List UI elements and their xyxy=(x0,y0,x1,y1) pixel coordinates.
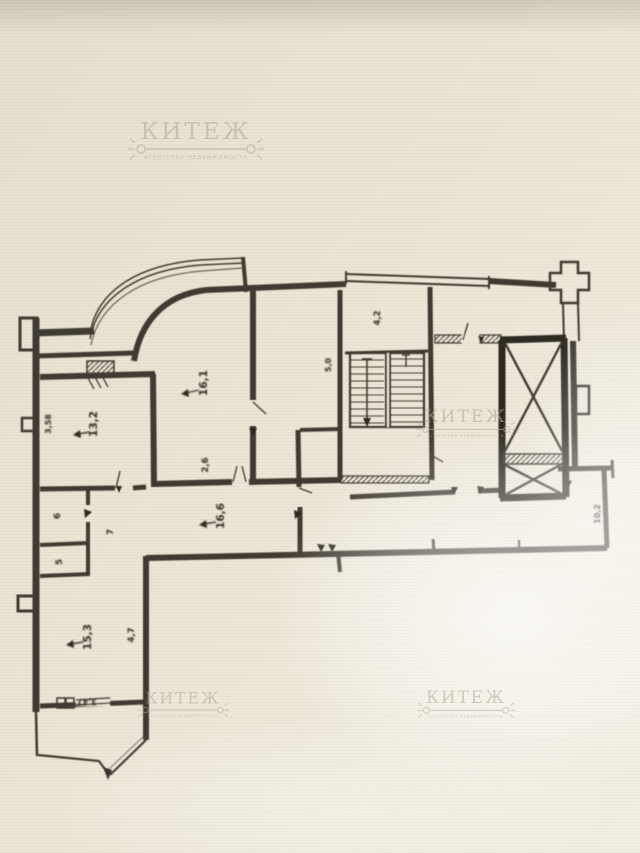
watermark-subtitle-text: АГЕНТСТВО НЕДВИЖИМОСТИ xyxy=(144,155,248,161)
label-dim-4-7: 4,7 xyxy=(127,627,137,642)
watermark-bottom-left: КИТЕЖ АГЕНТСТВО НЕДВИЖИМОСТИ xyxy=(137,688,229,718)
svg-text:КИТЕЖ: КИТЕЖ xyxy=(426,688,506,707)
svg-text:АГЕНТСТВО НЕДВИЖИМОСТИ: АГЕНТСТВО НЕДВИЖИМОСТИ xyxy=(428,434,505,438)
label-dim-4-2: 4,2 xyxy=(373,310,383,325)
label-room-13-2: 13,2 xyxy=(88,411,100,437)
watermark-brand-text: КИТЕЖ xyxy=(141,119,252,145)
svg-text:КИТЕЖ: КИТЕЖ xyxy=(145,688,220,707)
watermark-bottom-right: КИТЕЖ АГЕНТСТВО НЕДВИЖИМОСТИ xyxy=(417,688,515,718)
watermark-top: КИТЕЖ АГЕНТСТВО НЕДВИЖИМОСТИ xyxy=(128,119,264,161)
svg-text:АГЕНТСТВО НЕДВИЖИМОСТИ: АГЕНТСТВО НЕДВИЖИМОСТИ xyxy=(148,714,219,718)
label-room-15-3: 15,3 xyxy=(82,624,94,650)
label-dim-2-6: 2,6 xyxy=(201,457,211,472)
label-dim-3-47: 3,47 xyxy=(77,697,97,706)
watermark-middle: КИТЕЖ АГЕНТСТВО НЕДВИЖИМОСТИ xyxy=(416,407,517,438)
svg-text:АГЕНТСТВО НЕДВИЖИМОСТИ: АГЕНТСТВО НЕДВИЖИМОСТИ xyxy=(429,715,504,719)
label-room-16-1: 16,1 xyxy=(198,370,210,396)
label-room-6: 6 xyxy=(53,513,63,519)
svg-text:КИТЕЖ: КИТЕЖ xyxy=(425,407,507,427)
floor-plan-photo: 13,2 3,58 16,1 2,6 16,6 15,3 4,7 3,47 6 … xyxy=(0,0,640,853)
label-dim-5-0: 5,0 xyxy=(324,357,333,372)
label-dim-3-58: 3,58 xyxy=(44,414,53,434)
floor-plan-svg: 13,2 3,58 16,1 2,6 16,6 15,3 4,7 3,47 6 … xyxy=(0,0,640,853)
label-room-7: 7 xyxy=(106,529,116,535)
label-room-16-6: 16,6 xyxy=(215,503,227,529)
label-room-5: 5 xyxy=(55,559,65,565)
